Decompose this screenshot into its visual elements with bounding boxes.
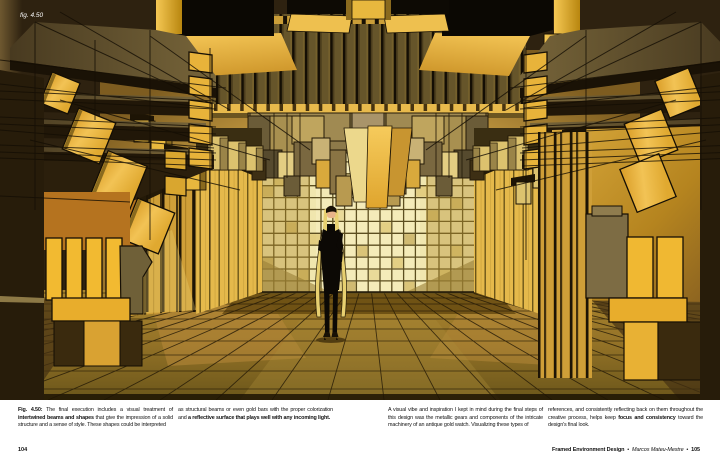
svg-text:fig. 4.50: fig. 4.50 [20, 12, 44, 19]
